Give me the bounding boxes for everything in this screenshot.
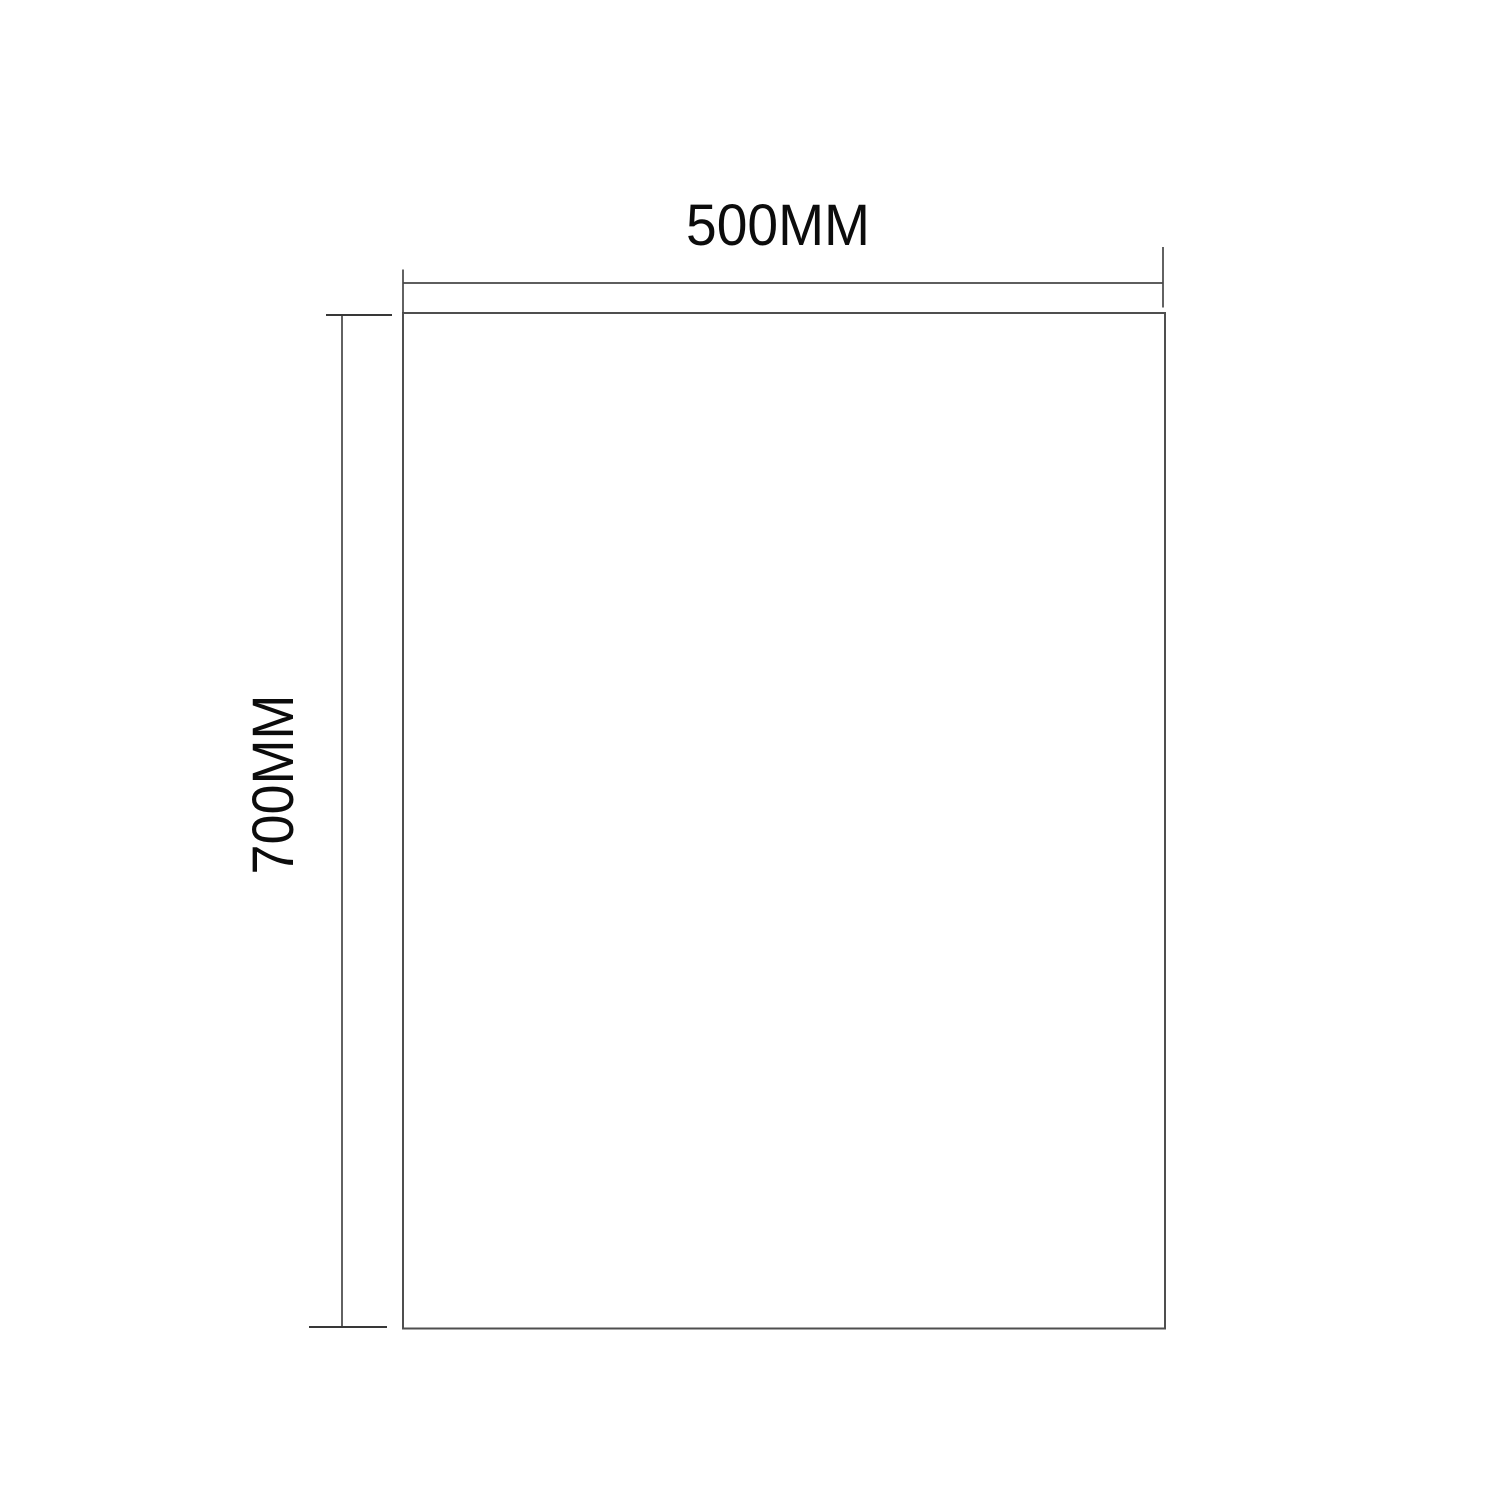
svg-text:700MM: 700MM [241,695,306,875]
svg-text:500MM: 500MM [686,193,870,258]
